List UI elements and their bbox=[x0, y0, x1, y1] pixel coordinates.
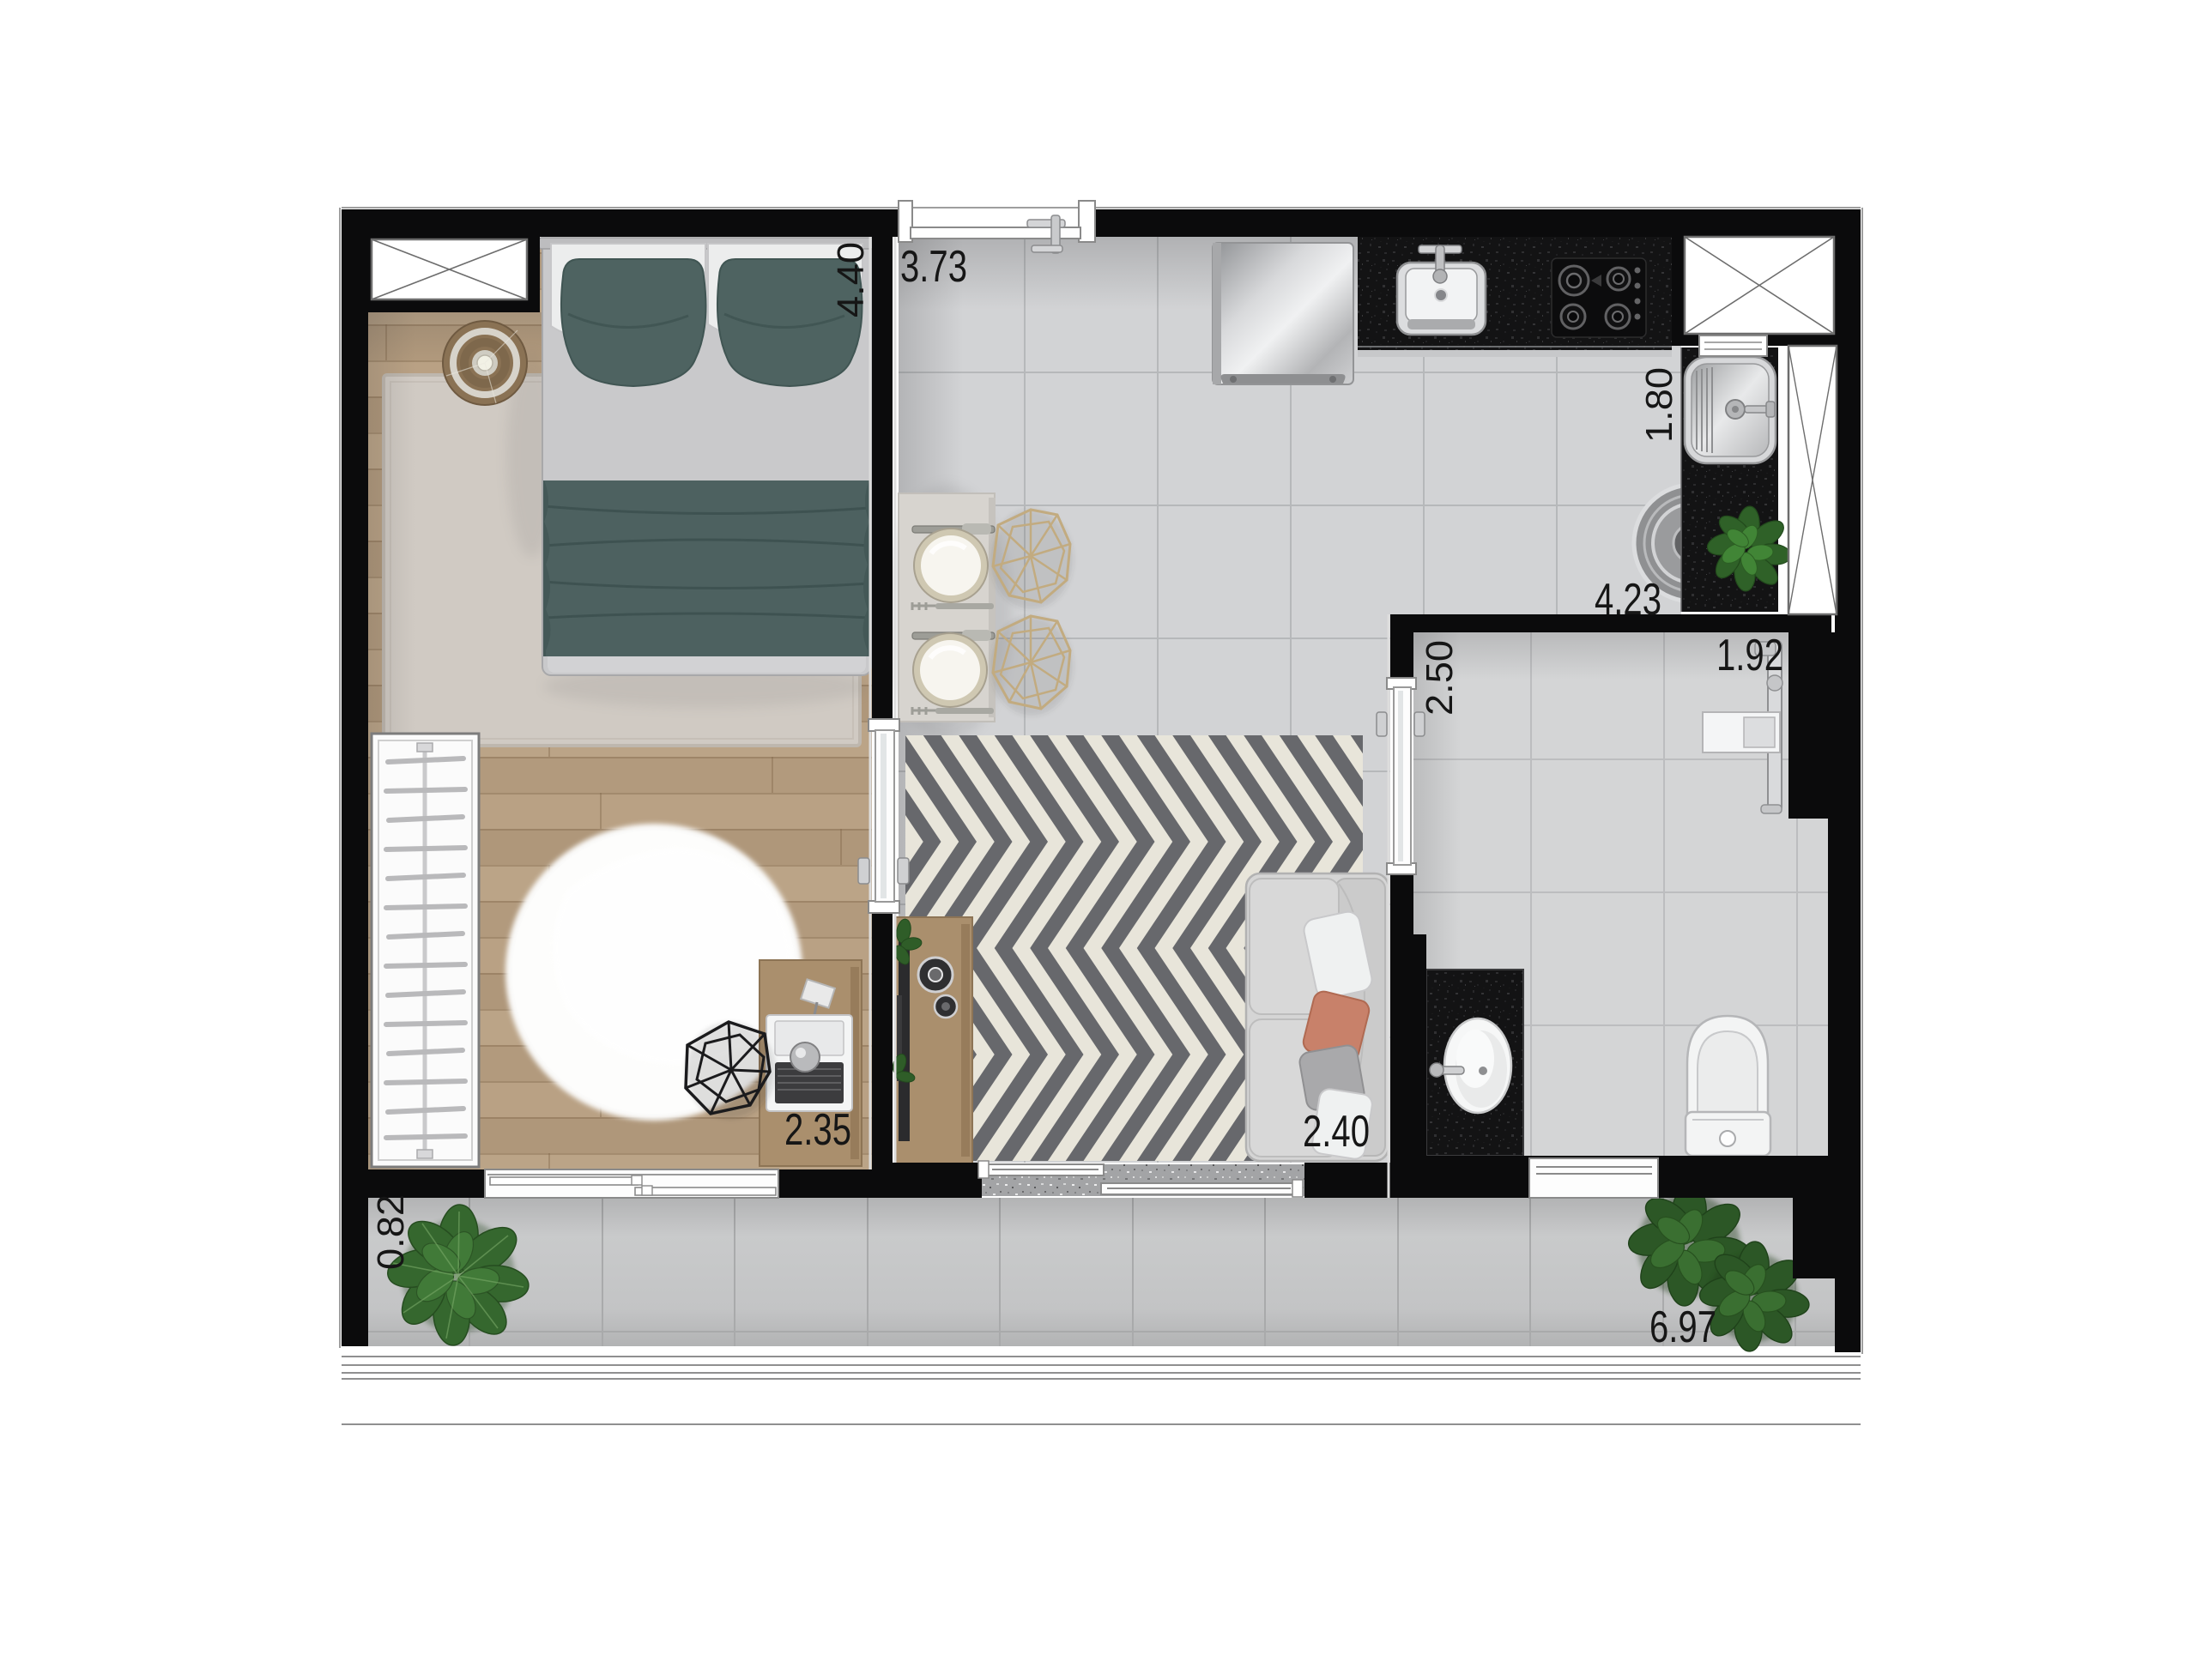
svg-text:6.97: 6.97 bbox=[1649, 1302, 1716, 1352]
svg-text:4.40: 4.40 bbox=[830, 242, 872, 317]
svg-text:1.80: 1.80 bbox=[1638, 367, 1680, 443]
svg-text:2.35: 2.35 bbox=[784, 1105, 851, 1155]
svg-text:1.92: 1.92 bbox=[1716, 631, 1783, 680]
svg-text:3.73: 3.73 bbox=[900, 242, 967, 292]
svg-text:0.82: 0.82 bbox=[370, 1194, 412, 1270]
svg-text:2.50: 2.50 bbox=[1419, 640, 1461, 716]
svg-text:2.40: 2.40 bbox=[1303, 1107, 1370, 1157]
svg-text:4.23: 4.23 bbox=[1595, 575, 1661, 625]
